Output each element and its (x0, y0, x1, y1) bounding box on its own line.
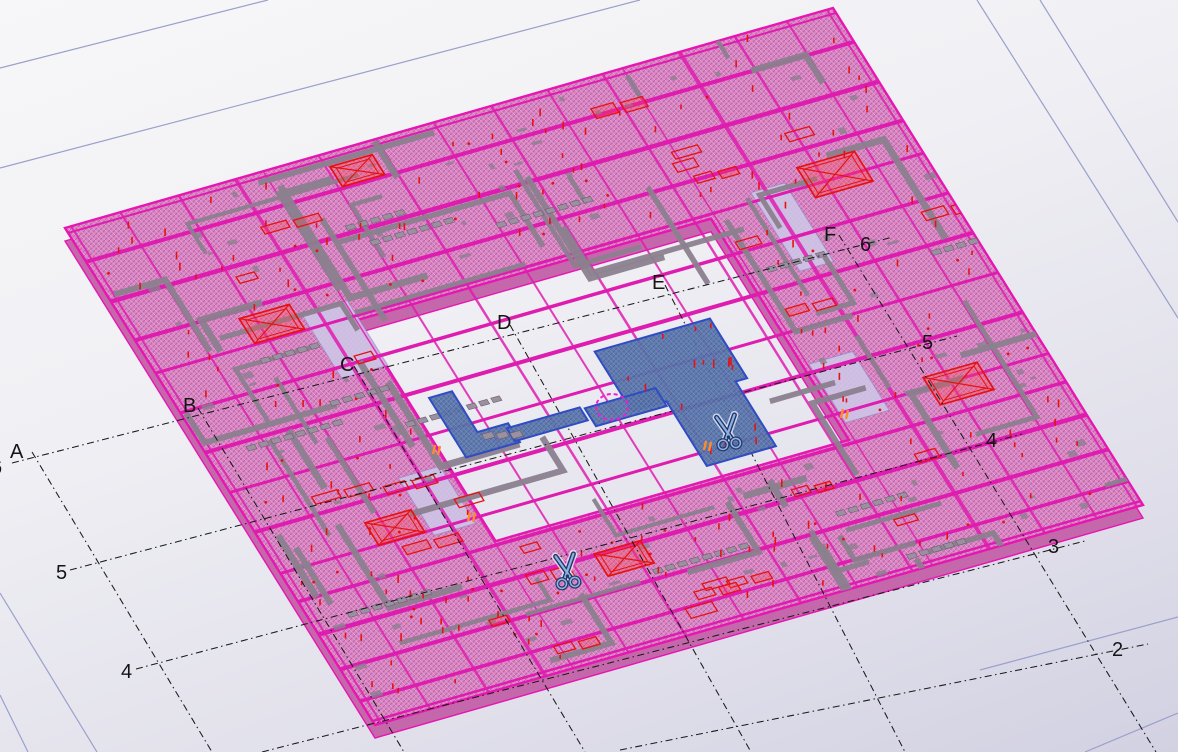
red-dot-mark (399, 494, 402, 497)
red-dot-mark (413, 517, 416, 520)
red-dot-mark (356, 457, 359, 460)
red-dot-mark (967, 523, 970, 526)
red-dot-mark (467, 142, 470, 145)
red-dot-mark (294, 245, 297, 248)
red-dot-mark (518, 185, 521, 188)
cad-viewport[interactable]: ABCDEF65465432 (0, 0, 1178, 752)
red-dot-mark (107, 272, 110, 275)
red-dot-mark (294, 288, 297, 291)
red-dot-mark (264, 501, 267, 504)
red-dot-mark (500, 590, 503, 593)
red-dot-mark (853, 289, 856, 292)
grid-label-6-right: 6 (860, 234, 871, 256)
red-dot-mark (1002, 521, 1005, 524)
red-dot-mark (410, 615, 413, 618)
grid-line-2[interactable] (620, 644, 1148, 750)
grid-label-E: E (652, 272, 665, 294)
red-dot-mark (606, 194, 609, 197)
red-dot-mark (312, 581, 315, 584)
grid-label-2-right: 2 (1112, 639, 1123, 661)
red-dot-mark (557, 592, 560, 595)
grid-label-A: A (10, 441, 24, 463)
stud-block (992, 231, 1003, 238)
grid-label-5-left: 5 (56, 562, 67, 584)
red-dot-mark (706, 96, 709, 99)
grid-label-F: F (824, 224, 836, 246)
red-dot-mark (812, 249, 815, 252)
view-boundary-line (977, 0, 1178, 318)
red-dot-mark (927, 327, 930, 330)
red-dot-mark (277, 384, 280, 387)
red-dot-mark (454, 218, 457, 221)
red-dot-mark (281, 459, 284, 462)
red-dot-mark (879, 408, 882, 411)
red-dot-mark (1089, 492, 1092, 495)
red-dot-mark (824, 488, 827, 491)
grid-label-3-right: 3 (1048, 536, 1059, 558)
stud-block (479, 399, 490, 406)
grid-label-4-right: 4 (986, 430, 997, 452)
red-dot-mark (355, 397, 358, 400)
view-boundary-line (1085, 713, 1178, 752)
red-dot-mark (551, 182, 554, 185)
grid-label-5-right: 5 (922, 332, 933, 354)
red-dot-mark (316, 249, 319, 252)
red-dot-mark (649, 553, 652, 556)
red-dot-mark (336, 571, 339, 574)
red-dot-mark (842, 538, 845, 541)
red-dot-mark (421, 279, 424, 282)
view-boundary-line (0, 593, 97, 752)
red-dot-mark (585, 573, 588, 576)
red-dot-mark (389, 283, 392, 286)
red-dot-mark (1007, 352, 1010, 355)
red-dot-mark (542, 233, 545, 236)
red-dot-mark (535, 633, 538, 636)
grid-label-4-left: 4 (121, 661, 132, 683)
red-dot-mark (326, 294, 329, 297)
grid-label-6-left: 6 (0, 457, 2, 479)
view-boundary-line (1040, 0, 1178, 222)
red-dot-mark (398, 531, 401, 534)
model-scene-svg: ABCDEF65465432 (0, 0, 1178, 752)
red-dot-mark (814, 522, 817, 525)
grid-line-A[interactable] (32, 452, 212, 752)
grid-label-B: B (183, 395, 196, 417)
grid-label-D: D (497, 312, 511, 334)
view-boundary-line (0, 695, 28, 752)
red-dot-mark (585, 179, 588, 182)
view-boundary-line (0, 0, 268, 68)
stud-block (980, 235, 991, 242)
red-dot-mark (1026, 347, 1029, 350)
red-dot-mark (412, 608, 415, 611)
red-dot-mark (471, 588, 474, 591)
red-dot-mark (956, 259, 959, 262)
view-boundary-line (980, 617, 1178, 670)
red-dot-mark (578, 530, 581, 533)
red-dot-mark (505, 161, 508, 164)
red-dot-mark (930, 357, 933, 360)
grid-label-C: C (340, 354, 354, 376)
stud-block (491, 396, 502, 403)
